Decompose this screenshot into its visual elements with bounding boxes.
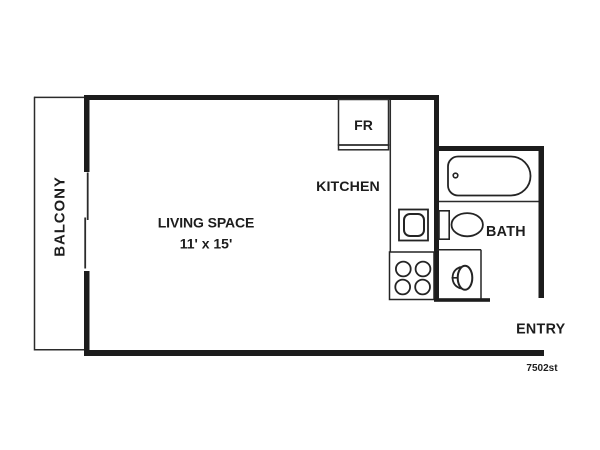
svg-text:11' x 15': 11' x 15' [180,236,233,252]
svg-text:BALCONY: BALCONY [51,176,68,256]
svg-text:LIVING SPACE: LIVING SPACE [158,214,255,230]
svg-text:ENTRY: ENTRY [516,322,566,338]
svg-text:FR: FR [354,117,373,133]
svg-text:KITCHEN: KITCHEN [316,179,380,195]
svg-text:7502st: 7502st [526,363,558,374]
svg-text:BATH: BATH [486,224,526,240]
